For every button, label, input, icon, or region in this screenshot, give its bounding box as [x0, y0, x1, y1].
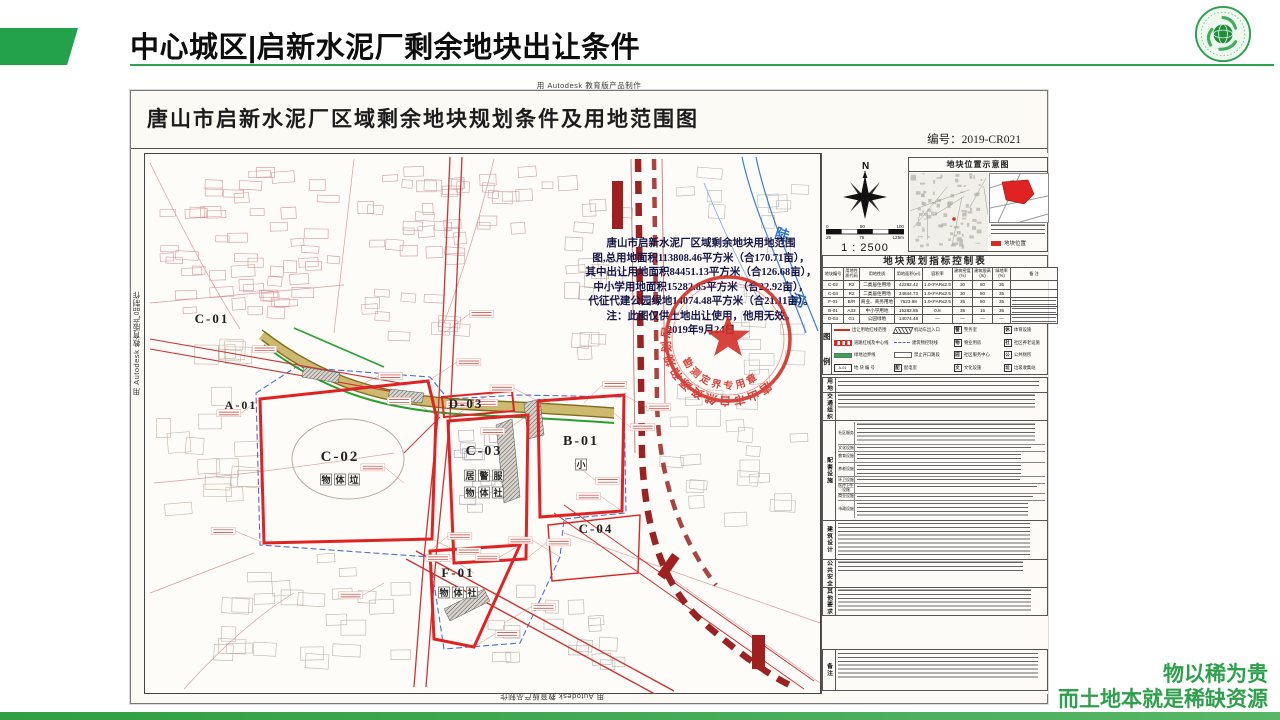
- table-cell: 35: [993, 289, 1011, 298]
- info-panel: N 050100: [821, 153, 1048, 694]
- legend-symbol-badge-icon: 社: [1004, 339, 1012, 347]
- location-sketch-box: 地块位置示意图 地块位置: [908, 157, 1048, 252]
- table-header: 建筑密度(%): [953, 268, 973, 281]
- svg-text:体: 体: [335, 474, 345, 485]
- legend-symbol-hatch-icon: [892, 327, 913, 334]
- table-cell: —: [973, 315, 993, 324]
- table-row: F-01B/R商业、商务用地7523.981.0<FAR≤2.5358035: [823, 298, 1058, 307]
- table-cell: 7523.98: [895, 298, 923, 307]
- legend-item: 休体育设施: [1002, 324, 1056, 337]
- legend-symbol-badge-icon: 配: [894, 364, 902, 372]
- legend-symbol-badge-icon: 休: [1004, 326, 1012, 334]
- annotation-line: 图,总用地面积113808.46平方米（合170.71亩），: [582, 252, 820, 267]
- legend-symbol-bluedash-icon: [894, 342, 910, 343]
- table-cell: 14074.48: [895, 315, 923, 324]
- legend-symbol-badge-icon: 公: [1004, 351, 1012, 359]
- table-cell: 34844.73: [895, 289, 923, 298]
- legend-item: 建筑物控制线: [892, 337, 952, 350]
- notes-section-label: 配套设施: [823, 421, 836, 520]
- table-cell: G1: [844, 315, 860, 324]
- svg-text:社: 社: [492, 487, 502, 498]
- table-cell: —: [993, 315, 1011, 324]
- notes-section-label: 公共安全: [823, 560, 836, 587]
- legend-caption: 图例: [823, 324, 832, 374]
- table-title: 地块规划指标控制表: [822, 255, 1048, 267]
- table-header: 备 注: [1011, 268, 1058, 281]
- legend-item: 机动车出入口: [892, 324, 952, 337]
- legend-item: 垃垃圾收集站: [1002, 362, 1056, 375]
- table-row: C-02R2二类居住用地42282.421.0<FAR≤2.5308035: [823, 281, 1058, 290]
- plot-location-label: 地块位置: [1004, 239, 1026, 247]
- legend-item: 配配电室: [892, 362, 952, 375]
- table-cell: [1011, 298, 1058, 307]
- notes-sub-label: 医疗卫生设施: [838, 484, 855, 493]
- table-cell: 35: [953, 306, 973, 315]
- seal-star-icon: [706, 315, 750, 356]
- table-header: 地块编号: [823, 268, 844, 281]
- legend-symbol-redline-icon: [834, 329, 850, 331]
- notes-sub-label: 社区服务: [838, 422, 855, 444]
- table-cell: 35: [993, 298, 1011, 307]
- plot-index-table: 地块规划指标控制表 地块编号用地性质代码用地性质用地面积(㎡)容积率建筑密度(%…: [822, 255, 1048, 321]
- plot-label-B-01: B-01: [563, 434, 599, 449]
- table-cell: 80: [973, 298, 993, 307]
- table-cell: F-01: [823, 298, 844, 307]
- scale-ratio: 1 : 2500: [822, 242, 908, 254]
- slogan-line-1: 物以稀为贵: [1058, 662, 1268, 687]
- scalebar-ticks-bottom: 2575125m: [826, 235, 904, 240]
- table-header: 建筑限高(m): [973, 268, 993, 281]
- legend-item: 园社区服务中心: [952, 349, 1002, 362]
- table-cell: —: [953, 315, 973, 324]
- table-cell: 1.0<FAR≤2.5: [923, 289, 953, 298]
- notes-section-label: 建筑设计: [823, 521, 836, 559]
- table-cell: 15: [973, 306, 993, 315]
- table-cell: [1011, 289, 1058, 298]
- location-inset-map: [989, 173, 1049, 223]
- legend-symbol-badge-icon: 垃: [1004, 364, 1012, 372]
- legend-label: 警务室: [964, 327, 977, 333]
- legend-item: 公公共厕所: [1002, 349, 1056, 362]
- table-header: 用地面积(㎡): [895, 268, 923, 281]
- table-cell: [1011, 306, 1058, 315]
- north-arrow-icon: N: [822, 157, 908, 219]
- legend-label: 禁止开口路段: [914, 352, 940, 358]
- table-cell: 80: [973, 289, 993, 298]
- plot-label-C-04: C-04: [579, 521, 614, 536]
- notes-sub-label: 市政设施: [838, 501, 855, 519]
- legend-item: 出让用地红线范围: [832, 324, 892, 337]
- legend-symbol-plain-icon: [894, 352, 912, 358]
- notes-sub-label: 文化设施: [838, 445, 855, 451]
- notes-sub-label: 教育设施: [838, 452, 855, 462]
- table-cell: [1011, 315, 1058, 324]
- svg-text:物: 物: [439, 587, 448, 598]
- remarks-box: 备注: [822, 649, 1048, 691]
- table-cell: 1.0<FAR≤2.5: [923, 281, 953, 290]
- legend-item: A-01地 块 编 号: [832, 362, 892, 375]
- table-cell: 二类居住用地: [860, 281, 895, 290]
- location-key: 地块位置: [991, 239, 1026, 247]
- legend-item: 文文化设施: [952, 362, 1002, 375]
- legend-label: 道路红线及中心线: [854, 340, 888, 346]
- table-header: 用地性质代码: [844, 268, 860, 281]
- table-header: 容积率: [923, 268, 953, 281]
- plot-label-C-03: C-03: [466, 444, 503, 459]
- plot-label-A-01: A-01: [225, 398, 258, 412]
- basemap-svg: C-01A-01C-02物体垃D-03C-03居警服物体社B-01小C-04F-…: [144, 153, 821, 694]
- annotation-line: 唐山市启新水泥厂区域剩余地块用地范围: [582, 237, 820, 252]
- svg-text:警: 警: [479, 470, 488, 481]
- plot-label-C-01: C-01: [195, 311, 230, 326]
- table-header: 用地性质: [860, 268, 895, 281]
- header-rule: [131, 148, 1047, 149]
- table-row: B-01A33中小学用地15282.850.8351535: [823, 306, 1058, 315]
- plot-location-swatch: [991, 241, 1001, 246]
- autodesk-watermark-left: 用 Autodesk 教育版产品制作: [131, 291, 142, 395]
- table-row: D-03G1公园绿地14074.48————: [823, 315, 1058, 324]
- svg-text:垃: 垃: [349, 474, 358, 485]
- table-cell: 42282.42: [895, 281, 923, 290]
- notes-sub-label: 养老设施: [838, 463, 855, 477]
- table-cell: R2: [844, 281, 860, 290]
- legend-item: 禁止开口路段: [892, 349, 952, 362]
- planning-document: 用 Autodesk 教育版产品制作 用 Autodesk 教育版产品制作 用 …: [130, 90, 1048, 704]
- table-cell: 30: [953, 289, 973, 298]
- table-cell: B-01: [823, 306, 844, 315]
- map-legend: 图例 出让用地红线范围机动车出入口警警务室休体育设施道路红线及中心线建筑物控制线…: [822, 323, 1048, 375]
- notes-section-label: 用地: [823, 378, 836, 392]
- slide-title: 中心城区|启新水泥厂剩余地块出让条件: [130, 24, 640, 66]
- table-cell: 二类居住用地: [860, 289, 895, 298]
- notes-section-建筑设计: 建筑设计: [822, 521, 1048, 560]
- table-row: C-03R2二类居住用地34844.731.0<FAR≤2.5308035: [823, 289, 1058, 298]
- svg-text:社: 社: [466, 587, 476, 598]
- table-cell: 35: [953, 298, 973, 307]
- notes-section-label: 交通组织: [823, 393, 836, 420]
- legend-label: 配电室: [904, 365, 917, 371]
- slide: 中心城区|启新水泥厂剩余地块出让条件 用 Autodesk 教育版产品制作 用 …: [0, 0, 1280, 720]
- table-cell: 0.8: [923, 306, 953, 315]
- table-cell: 商业、商务用地: [860, 298, 895, 307]
- legend-symbol-badge-icon: 文: [954, 364, 962, 372]
- legend-item: 绿地边界线: [832, 349, 892, 362]
- plot-label-F-01: F-01: [441, 565, 474, 580]
- plot-label-C-02: C-02: [321, 449, 360, 465]
- table-cell: —: [923, 315, 953, 324]
- legend-label: 社区服务中心: [964, 352, 990, 358]
- notes-section-交通组织: 交通组织: [822, 393, 1048, 421]
- table-cell: R2: [844, 289, 860, 298]
- legend-label: 物业用房: [964, 340, 981, 346]
- table-cell: 30: [953, 281, 973, 290]
- document-title: 唐山市启新水泥厂区域剩余地块规划条件及用地范围图: [147, 103, 699, 133]
- bottom-accent-bar: [0, 712, 1280, 720]
- slogan-line-2: 而土地本就是稀缺资源: [1058, 687, 1268, 712]
- legend-label: 建筑物控制线: [912, 340, 938, 346]
- legend-item: 道路红线及中心线: [832, 337, 892, 350]
- legend-symbol-badge-icon: 警: [954, 326, 962, 334]
- compass-scale-zone: N 050100: [822, 157, 908, 252]
- table-cell: 80: [973, 281, 993, 290]
- legend-label: 地 块 编 号: [854, 365, 875, 371]
- table-cell: C-03: [823, 289, 844, 298]
- title-underline: [130, 64, 1274, 66]
- legend-label: 出让用地红线范围: [852, 327, 886, 333]
- legend-label: 文化设施: [964, 365, 981, 371]
- table-cell: A33: [844, 306, 860, 315]
- legend-label: 机动车出入口: [914, 327, 940, 333]
- table-cell: 35: [993, 306, 1011, 315]
- slogan: 物以稀为贵 而土地本就是稀缺资源: [1058, 662, 1268, 712]
- table-cell: C-02: [823, 281, 844, 290]
- table-cell: 公园绿地: [860, 315, 895, 324]
- notes-section-其他要求: 其他要求: [822, 588, 1048, 616]
- title-accent-shape: [0, 28, 78, 65]
- legend-label: 体育设施: [1014, 327, 1031, 333]
- svg-text:物: 物: [321, 474, 330, 485]
- legend-label: 绿地边界线: [854, 352, 875, 358]
- table-cell: 1.0<FAR≤2.5: [923, 298, 953, 307]
- svg-text:勘测定界专用章: 勘测定界专用章: [680, 355, 762, 392]
- table-cell: [1011, 281, 1058, 290]
- location-sketch-title: 地块位置示意图: [909, 158, 1047, 172]
- svg-text:N: N: [862, 161, 869, 172]
- svg-text:居: 居: [465, 471, 474, 481]
- svg-text:体: 体: [479, 487, 489, 498]
- svg-text:服: 服: [493, 471, 503, 481]
- notes-section-公共安全: 公共安全: [822, 560, 1048, 588]
- legend-item: 警警务室: [952, 324, 1002, 337]
- city-overview-map: [910, 173, 988, 251]
- table-cell: 35: [993, 281, 1011, 290]
- table-cell: B/R: [844, 298, 860, 307]
- legend-item: 物物业用房: [952, 337, 1002, 350]
- notes-section-配套设施: 配套设施社区服务文化设施教育设施养老设施环卫设施医疗卫生设施商业设施市政设施: [822, 421, 1048, 521]
- planning-notes: 用地交通组织配套设施社区服务文化设施教育设施养老设施环卫设施医疗卫生设施商业设施…: [822, 377, 1048, 643]
- legend-symbol-redstripe-icon: [834, 340, 852, 346]
- legend-label: 社区养老设施: [1014, 340, 1040, 346]
- table-cell: 中小学用地: [860, 306, 895, 315]
- notes-section-label: 其他要求: [823, 588, 836, 615]
- legend-label: 垃圾收集站: [1014, 365, 1035, 371]
- autodesk-watermark-top: 用 Autodesk 教育版产品制作: [537, 80, 641, 91]
- svg-text:小: 小: [575, 459, 585, 470]
- legend-symbol-greenline-icon: [834, 353, 852, 358]
- location-note-text: [991, 224, 1045, 236]
- legend-symbol-idbox-icon: A-01: [834, 364, 852, 372]
- site-map: C-01A-01C-02物体垃D-03C-03居警服物体社B-01小C-04F-…: [144, 153, 821, 694]
- legend-symbol-badge-icon: 物: [954, 339, 962, 347]
- red-seal-stamp: 唐山市自然资源和规划局 勘测定界专用章: [656, 265, 800, 413]
- bureau-logo: [1194, 5, 1252, 63]
- svg-text:体: 体: [453, 587, 463, 598]
- remarks-label: 备注: [823, 650, 836, 690]
- svg-text:物: 物: [465, 487, 474, 498]
- legend-item: 社社区养老设施: [1002, 337, 1056, 350]
- document-number: 编号：2019-CR021: [927, 131, 1021, 147]
- table-cell: 15282.85: [895, 306, 923, 315]
- legend-label: 公共厕所: [1014, 352, 1031, 358]
- table-header: 绿地率(%): [993, 268, 1011, 281]
- legend-symbol-badge-icon: 园: [954, 351, 962, 359]
- table-cell: D-03: [823, 315, 844, 324]
- notes-section-用地: 用地: [822, 377, 1048, 393]
- notes-sub-label: 商业设施: [838, 494, 855, 500]
- plot-label-D-03: D-03: [449, 396, 484, 411]
